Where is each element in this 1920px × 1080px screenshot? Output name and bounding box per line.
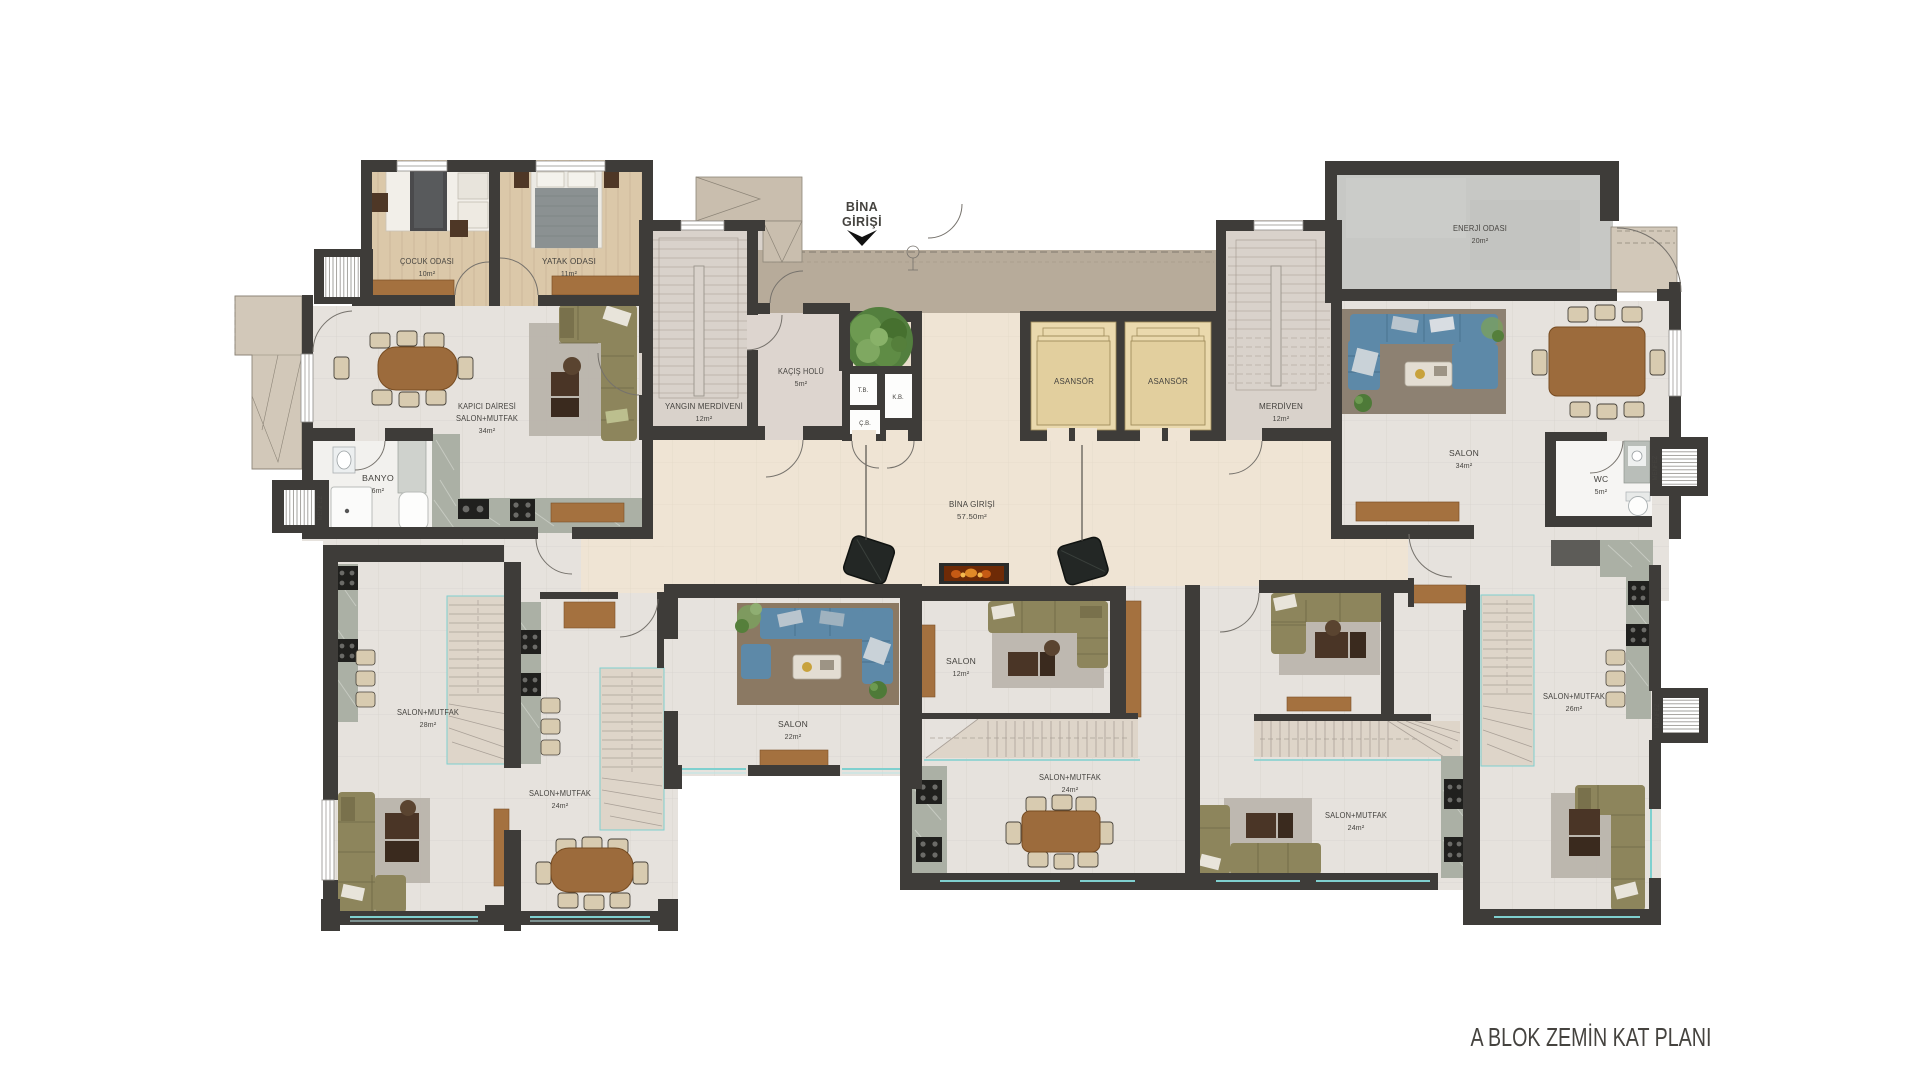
svg-text:ENERJİ ODASI: ENERJİ ODASI [1453,223,1507,233]
svg-text:MENFEZ: MENFEZ [318,495,324,520]
svg-text:22m²: 22m² [785,734,802,741]
svg-text:BANYO: BANYO [362,473,394,483]
svg-text:34m²: 34m² [479,428,496,435]
svg-text:SALON+MUTFAK: SALON+MUTFAK [1543,691,1605,701]
svg-text:A BLOK ZEMİN KAT PLANI: A BLOK ZEMİN KAT PLANI [1471,1022,1712,1052]
svg-text:ASANSÖR: ASANSÖR [1054,377,1094,386]
svg-text:SALON+MUTFAK: SALON+MUTFAK [397,707,459,717]
svg-text:24m²: 24m² [1348,825,1365,832]
svg-text:YANGIN MERDİVENİ: YANGIN MERDİVENİ [665,401,743,411]
svg-text:BİNA GİRİŞİ: BİNA GİRİŞİ [949,499,995,509]
svg-text:ÇOCUK ODASI: ÇOCUK ODASI [400,256,454,266]
svg-text:SALON: SALON [1449,448,1479,458]
svg-text:24m²: 24m² [1062,787,1079,794]
svg-text:11m²: 11m² [561,271,578,278]
svg-text:12m²: 12m² [1273,416,1290,423]
svg-text:KAPICI DAİRESİ: KAPICI DAİRESİ [458,401,516,411]
svg-text:28m²: 28m² [420,722,437,729]
svg-text:10m²: 10m² [419,271,436,278]
svg-text:24m²: 24m² [552,803,569,810]
svg-text:WC: WC [1594,474,1609,484]
svg-text:6m²: 6m² [372,488,385,495]
svg-text:K.B.: K.B. [892,395,904,401]
svg-text:SALON+MUTFAK: SALON+MUTFAK [529,788,591,798]
svg-text:12m²: 12m² [696,416,713,423]
svg-text:SALON+MUTFAK: SALON+MUTFAK [1325,810,1387,820]
svg-text:26m²: 26m² [1566,706,1583,713]
svg-text:MENFEZ: MENFEZ [1655,703,1661,728]
svg-text:20m²: 20m² [1472,238,1489,245]
svg-text:57.50m²: 57.50m² [957,514,988,521]
svg-text:GİRİŞİ: GİRİŞİ [842,214,882,229]
svg-text:SALON: SALON [778,719,808,729]
svg-text:BİNA: BİNA [846,199,878,214]
svg-text:T.B.: T.B. [858,388,869,394]
svg-text:KAÇIŞ HOLÜ: KAÇIŞ HOLÜ [778,366,824,376]
svg-text:5m²: 5m² [795,381,808,388]
svg-text:5m²: 5m² [1595,489,1608,496]
svg-text:SALON+MUTFAK: SALON+MUTFAK [456,413,518,423]
svg-text:34m²: 34m² [1456,463,1473,470]
svg-text:MENFEZ: MENFEZ [1653,455,1659,480]
svg-text:YATAK ODASI: YATAK ODASI [542,256,596,266]
svg-text:Ç.B.: Ç.B. [859,421,871,427]
svg-text:MERDİVEN: MERDİVEN [1259,401,1303,411]
svg-text:ASANSÖR: ASANSÖR [1148,377,1188,386]
svg-text:SALON+MUTFAK: SALON+MUTFAK [1039,772,1101,782]
svg-text:SALON: SALON [946,656,976,666]
svg-text:12m²: 12m² [953,671,970,678]
